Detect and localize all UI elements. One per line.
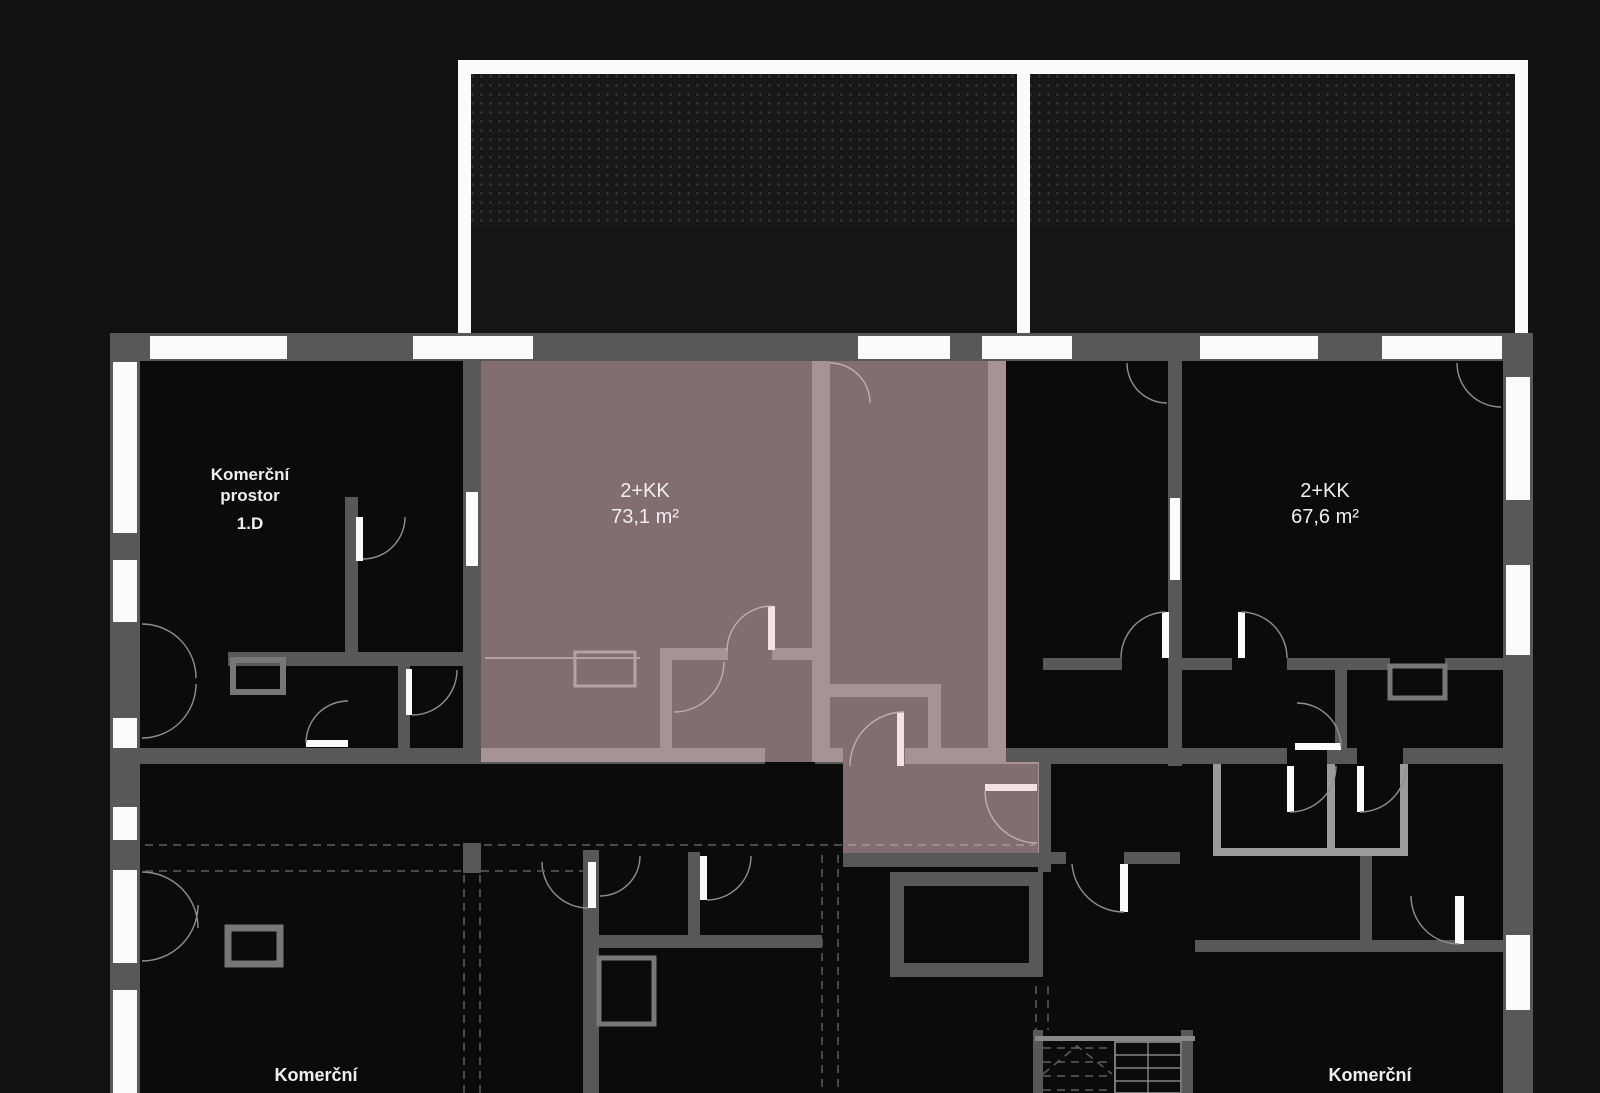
floor-plan-drawing bbox=[0, 0, 1600, 1093]
terrace-left bbox=[471, 74, 1017, 333]
floor-plan-page: Komerční prostor 1.D 2+KK 73,1 m² 2+KK 6… bbox=[0, 0, 1600, 1093]
elevator-shaft bbox=[890, 872, 1043, 977]
terrace-right bbox=[1030, 74, 1515, 333]
